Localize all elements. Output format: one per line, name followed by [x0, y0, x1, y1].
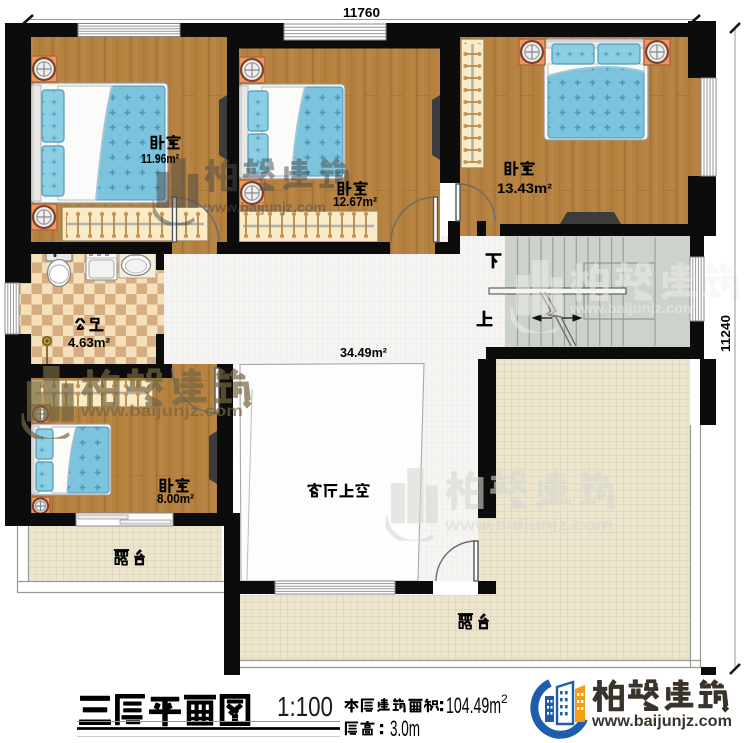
svg-text:13.43m²: 13.43m² — [497, 180, 552, 196]
svg-text:11.96m²: 11.96m² — [141, 151, 180, 166]
svg-text:1:100: 1:100 — [277, 691, 333, 722]
svg-text:www.baijunjz.com: www.baijunjz.com — [569, 300, 696, 316]
svg-text:11240: 11240 — [718, 315, 733, 352]
svg-text:8.00m²: 8.00m² — [157, 491, 195, 506]
svg-text:www.baijunjz.com: www.baijunjz.com — [444, 517, 613, 534]
svg-text:3.0m: 3.0m — [390, 716, 420, 741]
svg-text:4.63m²: 4.63m² — [68, 335, 111, 350]
svg-text:www.baijunjz.com: www.baijunjz.com — [591, 713, 732, 730]
svg-text:12.67m²: 12.67m² — [333, 194, 378, 209]
svg-text:11760: 11760 — [343, 5, 380, 20]
svg-text:www.baijunjz.com: www.baijunjz.com — [203, 199, 326, 215]
svg-text:2: 2 — [501, 692, 508, 706]
svg-text:34.49m²: 34.49m² — [340, 345, 388, 360]
svg-text:104.49m: 104.49m — [446, 693, 501, 718]
svg-text:www.baijunjz.com: www.baijunjz.com — [80, 403, 243, 420]
